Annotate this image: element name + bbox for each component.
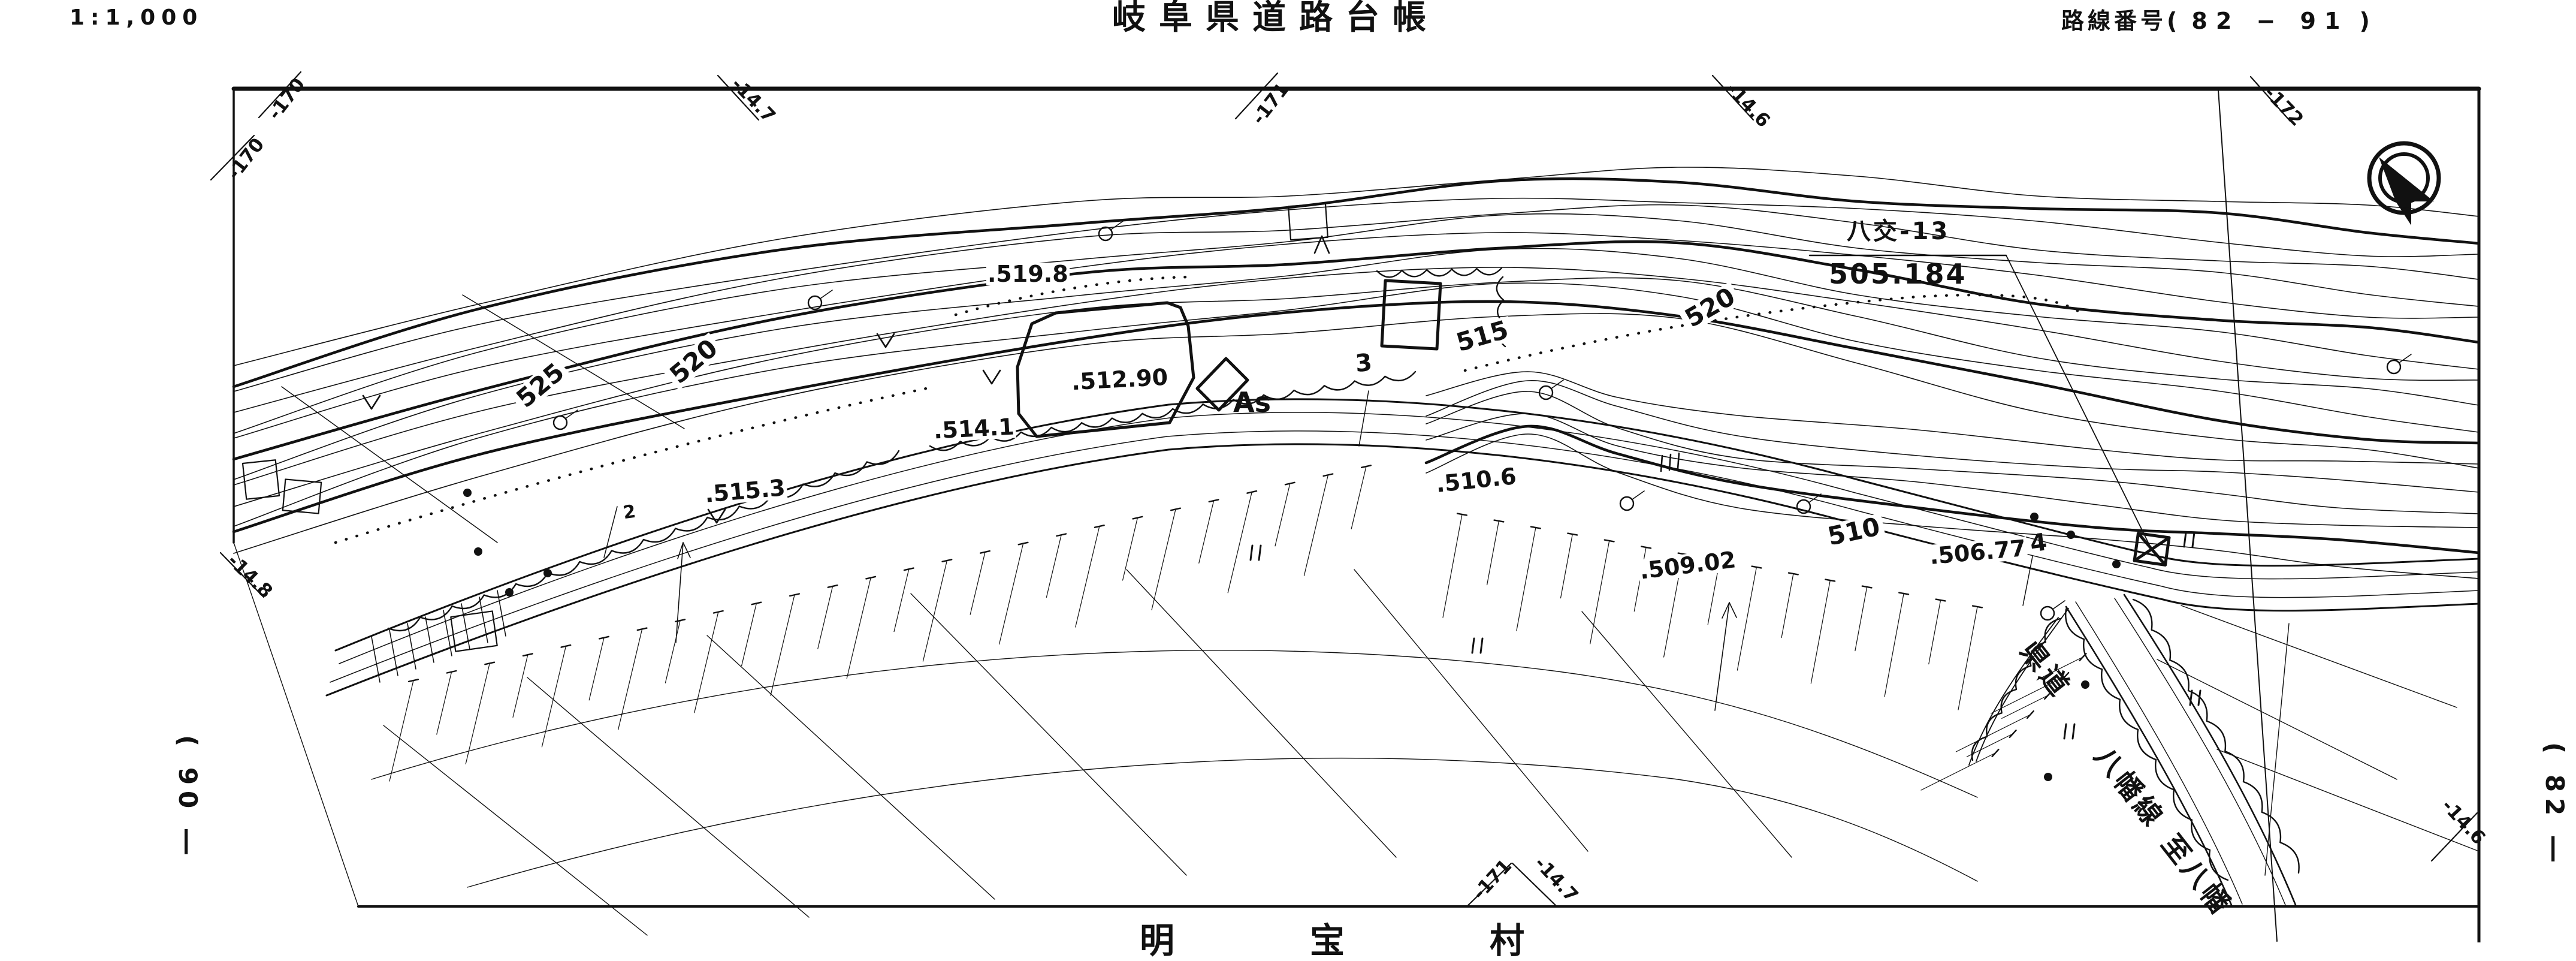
point-dot	[2081, 680, 2089, 689]
slope-hatch-cap	[1056, 534, 1066, 537]
parcel-line	[2217, 749, 2479, 851]
slope-hatch-cap	[1992, 749, 1999, 757]
slope-hatch-line	[1076, 526, 1100, 627]
slope-hatch-cap	[1247, 491, 1257, 493]
slope-hatch-cap	[828, 585, 838, 588]
slope-hatch-cap	[1936, 600, 1946, 601]
slope-hatch-cap	[638, 628, 647, 631]
rice-field-icon	[1472, 638, 1482, 653]
rice-field-icon	[2184, 532, 2194, 547]
parcel-line	[2265, 623, 2289, 875]
bottom-place-char: 明	[1140, 923, 1174, 958]
slope-hatch-cap	[2080, 653, 2086, 661]
slope-hatch-line	[1929, 600, 1941, 664]
slope-hatch-cap	[447, 671, 457, 673]
slope-hatch-line	[1737, 567, 1756, 670]
slope-hatch-cap	[1095, 525, 1104, 528]
slope-hatch-line	[742, 604, 757, 666]
slope-hatch-cap	[1209, 499, 1219, 502]
slope-hatch-cap	[1285, 483, 1295, 485]
slope-hatch-cap	[409, 679, 418, 682]
slope-hatch-cap	[1494, 520, 1504, 522]
benchmark-elevation: 505.184	[1829, 260, 1967, 288]
building-rect	[1382, 281, 1440, 349]
slope-hatch-cap	[523, 653, 533, 656]
parcel-line	[1354, 570, 1588, 851]
parcel-line	[2157, 659, 2397, 779]
slope-hatch-line	[1517, 528, 1536, 631]
slope-hatch-line	[589, 638, 604, 700]
road-arrow	[676, 543, 683, 643]
utility-pole-icon	[1620, 497, 1633, 510]
point-dot	[2044, 773, 2052, 781]
rice-field-icon	[1251, 546, 1261, 560]
slope-hatch-line	[771, 595, 795, 695]
slope-hatch-cap	[2010, 730, 2016, 737]
contour-line	[1426, 381, 2479, 492]
utility-pole-tail	[1551, 380, 1563, 388]
stone-wall	[2133, 600, 2299, 873]
road-arrow	[1715, 602, 1729, 710]
spot-elevation-label: .512.90	[1070, 366, 1170, 394]
vegetation-v-icon	[877, 334, 894, 347]
map-drawing	[0, 0, 2576, 942]
slope-hatch-cap	[1171, 508, 1180, 511]
slope-hatch-cap	[1862, 586, 1872, 588]
road-edge-upper-inner	[339, 412, 2479, 664]
stone-wall	[388, 451, 899, 631]
point-dot	[505, 588, 514, 597]
slope-hatch-cap	[1457, 514, 1467, 516]
map-sheet: 1:1,000 岐阜県道路台帳 路線番号(82 − 91) 八交-13 505.…	[0, 0, 2576, 942]
route-number-close: )	[2359, 8, 2373, 34]
parcel-line	[1127, 570, 1396, 857]
slope-hatch-line	[1123, 518, 1138, 580]
bottom-place-char: 村	[1490, 923, 1524, 958]
slope-hatch-line	[665, 620, 680, 683]
slope-hatch-cap	[866, 577, 875, 579]
slope-hatch-line	[1885, 594, 1904, 697]
slope-hatch-cap	[1361, 465, 1371, 468]
point-dot	[543, 569, 552, 577]
slope-hatching	[389, 465, 2086, 790]
utility-pole-tail	[1111, 221, 1123, 230]
slope-hatch-line	[1304, 475, 1328, 576]
point-dot	[2030, 513, 2039, 521]
slope-hatch-line	[542, 646, 566, 747]
station-number: 4	[2028, 530, 2048, 556]
slope-hatch-cap	[1641, 547, 1651, 549]
map-scale: 1:1,000	[70, 7, 203, 29]
slope-hatch-line	[1561, 534, 1573, 598]
slope-hatch-cap	[1531, 527, 1541, 529]
slope-hatch-line	[970, 552, 985, 614]
vegetation-v-icon	[983, 370, 1000, 384]
slope-hatch-line	[894, 569, 909, 631]
slope-hatch-cap	[904, 568, 914, 571]
utility-pole-tail	[1632, 491, 1644, 499]
slope-hatch-cap	[485, 662, 494, 665]
spot-elevation-label: .515.3	[703, 476, 787, 506]
bottom-place-char: 宝	[1310, 923, 1345, 958]
slope-hatch-line	[999, 544, 1023, 644]
slope-hatch-line	[847, 578, 871, 679]
slope-hatch-cap	[1605, 540, 1614, 542]
point-dot	[2067, 531, 2075, 539]
slope-hatch-line	[1199, 501, 1214, 563]
rice-field-icon	[2064, 724, 2074, 739]
slope-hatch-cap	[1789, 573, 1798, 575]
stone-wall	[1377, 268, 1502, 277]
north-arrow-icon	[2369, 143, 2439, 225]
adjacent-sheet-left: ( 90 ―	[175, 735, 200, 860]
vegetation-triangle-icon	[1315, 236, 1329, 253]
route-number-value: 82 − 91	[2181, 8, 2359, 34]
slope-hatch-line	[1855, 587, 1867, 651]
parcel-line	[911, 594, 1186, 875]
sheet-title: 岐阜県道路台帳	[1112, 1, 1439, 35]
benchmark-name: 八交-13	[1847, 219, 1950, 243]
road-edges	[327, 399, 2479, 906]
slope-hatch-line	[1921, 753, 1995, 790]
slope-hatch-cap	[1973, 606, 1982, 608]
slope-hatch-line	[923, 561, 947, 661]
point-dot	[463, 489, 472, 497]
slope-hatch-line	[1443, 514, 1462, 617]
slope-hatch-line	[1275, 484, 1290, 546]
parcel-boundaries	[372, 570, 2479, 935]
spot-elevation-label: .519.8	[986, 263, 1070, 285]
parcel-line	[383, 725, 647, 935]
slope-hatch-cap	[980, 551, 990, 553]
slope-hatch-cap	[1019, 543, 1028, 545]
parcel-line	[467, 758, 1977, 887]
slope-hatch-line	[1046, 535, 1061, 597]
road-edge-upper	[336, 399, 2479, 650]
slope-hatch-cap	[1825, 580, 1835, 582]
slope-hatch-line	[437, 672, 452, 734]
slope-hatch-cap	[1752, 567, 1762, 568]
slope-hatch-cap	[752, 602, 762, 605]
route-number: 路線番号(82 − 91)	[2061, 10, 2373, 32]
stone-wall	[2065, 609, 2228, 880]
contour-line	[234, 233, 2479, 438]
parcel-line	[527, 677, 809, 917]
parcel-line	[372, 650, 1977, 797]
slope-hatch-line	[1781, 574, 1793, 638]
point-dot	[2112, 560, 2121, 568]
spot-elevation-label: .514.1	[932, 415, 1016, 442]
contour-line	[234, 278, 2479, 507]
slope-hatch-cap	[1568, 534, 1577, 535]
utility-pole-icon	[554, 416, 567, 429]
road-arrow-head	[678, 543, 690, 559]
slope-hatch-line	[1590, 541, 1609, 644]
slope-hatch-line	[513, 655, 528, 717]
adjacent-sheet-right: ( 82 ―	[2542, 742, 2567, 867]
station-number: 3	[1354, 351, 1373, 376]
crossed-box-icon	[2134, 534, 2169, 565]
slope-hatch-line	[2002, 695, 2048, 718]
point-dot	[474, 547, 482, 556]
road-edge-lower	[327, 444, 2479, 695]
slope-hatch-cap	[599, 637, 609, 639]
slope-hatch-line	[1811, 580, 1830, 683]
slope-hatch-line	[389, 680, 413, 781]
utility-pole-icon	[1099, 227, 1112, 240]
slope-hatch-cap	[2027, 711, 2034, 718]
slope-hatch-line	[1958, 607, 1977, 710]
building-small	[243, 460, 279, 499]
route-number-label: 路線番号(	[2061, 8, 2181, 34]
utility-pole-icon	[2387, 360, 2400, 373]
slope-hatch-line	[1351, 466, 1366, 529]
slope-hatch-line	[1487, 521, 1499, 585]
utility-pole-icon	[1539, 386, 1553, 399]
slope-hatch-cap	[1133, 517, 1143, 519]
slope-hatch-cap	[675, 619, 685, 622]
buildings	[243, 204, 1440, 652]
slope-hatch-line	[1228, 492, 1252, 593]
slope-hatch-cap	[790, 594, 799, 597]
station-number: 2	[622, 503, 637, 523]
slope-hatch-cap	[714, 611, 723, 613]
slope-hatch-cap	[1899, 593, 1908, 595]
slope-hatch-cap	[943, 559, 952, 562]
parcel-line	[1582, 611, 1792, 857]
contour-line	[234, 302, 2479, 532]
slope-hatch-line	[818, 586, 833, 649]
fence-lines	[282, 295, 2033, 605]
slope-hatch-line	[1152, 509, 1176, 610]
slope-hatch-line	[1956, 715, 2030, 752]
slope-hatch-cap	[1324, 474, 1333, 477]
road-surface-label: As	[1233, 388, 1271, 416]
utility-pole-tail	[2053, 601, 2065, 609]
contour-line	[1426, 426, 2479, 553]
slope-hatch-line	[618, 629, 642, 730]
slope-hatch-cap	[561, 645, 571, 647]
utility-pole-icon	[2041, 607, 2054, 620]
utility-pole-tail	[820, 290, 832, 299]
dotted-boundaries	[336, 277, 2079, 543]
